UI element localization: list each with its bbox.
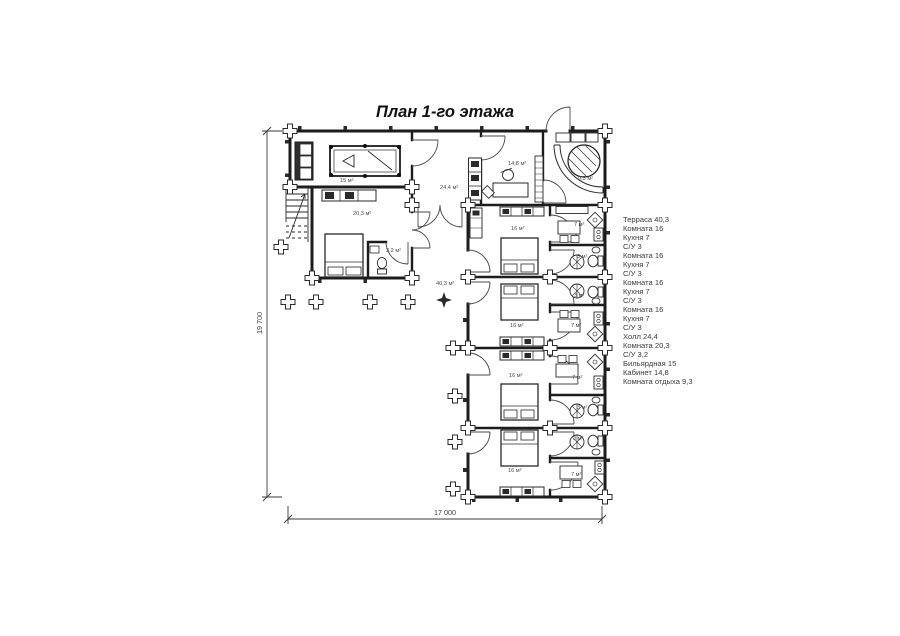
- lounge-top-bench: [556, 133, 598, 142]
- room-label-unit2-room: 16 м²: [510, 323, 524, 329]
- toilet-icon: [588, 435, 603, 447]
- room-label-unit1-bath: 3 м²: [577, 254, 588, 260]
- room-label-terrace: 40,3 м²: [436, 281, 454, 287]
- sink-icon: [587, 476, 603, 492]
- legend-item: Комната отдыха 9,3: [623, 377, 693, 386]
- legend-item: С/У 3: [623, 296, 642, 305]
- master-bedroom: [322, 190, 387, 277]
- toilet-icon: [377, 257, 386, 268]
- dresser: [500, 337, 544, 346]
- dimension-width-label: 17 000: [434, 508, 456, 517]
- floor-plan-page: 19 700 17 000 15 м² 20,3 м² 3,2 м² 24,4 …: [0, 0, 900, 636]
- bed: [501, 384, 538, 420]
- legend-item: Кабинет 14,8: [623, 368, 669, 377]
- bed: [501, 430, 538, 466]
- sink-icon: [592, 449, 600, 455]
- room-label-unit3-room: 16 м²: [509, 373, 523, 379]
- room-label-unit1-kitchen: 7 м²: [574, 222, 585, 228]
- legend-item: Бильярдная 15: [623, 359, 676, 368]
- room-label-hall: 24,4 м²: [440, 185, 458, 191]
- room-label-unit3-bath: 3 м²: [577, 405, 588, 411]
- unit-2: [500, 284, 603, 346]
- sofa: [295, 142, 313, 180]
- legend-item: Комната 16: [623, 305, 663, 314]
- room-label-master-bedroom: 20,3 м²: [353, 211, 371, 217]
- unit-3: [500, 351, 603, 420]
- legend-item: С/У 3: [623, 323, 642, 332]
- stair-direction-arrow: [289, 194, 305, 238]
- legend: Терраса 40,3 Комната 16 Кухня 7 С/У 3 Ко…: [623, 215, 693, 386]
- bed: [501, 284, 538, 320]
- legend-item: Терраса 40,3: [623, 215, 669, 224]
- post-cross-icon: [401, 295, 415, 309]
- door-office-lounge: [543, 180, 566, 203]
- dresser: [500, 207, 544, 216]
- exterior-stairs: [286, 188, 308, 242]
- room-label-unit2-bath: 3 м²: [574, 293, 585, 299]
- room-label-unit2-kitchen: 7 м²: [571, 323, 582, 329]
- room-label-billiard: 15 м²: [340, 178, 354, 184]
- hall-wardrobe: [469, 158, 482, 200]
- hall: [469, 158, 482, 200]
- chair: [560, 236, 568, 243]
- post-cross-icon: [448, 389, 462, 403]
- room-label-unit1-room: 16 м²: [511, 226, 525, 232]
- chair: [571, 311, 579, 318]
- door-unit3-entry: [468, 353, 490, 375]
- legend-item: Кухня 7: [623, 233, 650, 242]
- master-bed: [325, 234, 363, 277]
- stove-icon: [594, 376, 603, 389]
- printer: [482, 186, 495, 199]
- page-title: План 1-го этажа: [376, 103, 514, 121]
- door-entrance: [546, 107, 570, 131]
- room-label-unit4-room: 16 м²: [508, 468, 522, 474]
- room-label-unit3-kitchen: 7 м²: [572, 375, 583, 381]
- room-label-unit4-bath: 3 м²: [573, 436, 584, 442]
- billiard-room: [295, 142, 401, 180]
- legend-item: Кухня 7: [623, 260, 650, 269]
- room-label-unit4-kitchen: 7 м²: [571, 472, 582, 478]
- room-label-master-bath: 3,2 м²: [386, 248, 401, 254]
- legend-item: Комната 20,3: [623, 341, 670, 350]
- chair: [569, 356, 577, 363]
- post-cross-icon: [448, 435, 462, 449]
- floor-plan-svg: 19 700 17 000 15 м² 20,3 м² 3,2 м² 24,4 …: [0, 0, 900, 636]
- sink-icon: [592, 247, 600, 253]
- toilet-icon: [588, 404, 603, 416]
- legend-item: Кухня 7: [623, 287, 650, 296]
- stove-icon: [595, 461, 604, 474]
- room-label-lounge: 9,3 м²: [578, 176, 593, 182]
- legend-item: Комната 16: [623, 278, 663, 287]
- door-bedroom-terrace-2: [412, 230, 430, 248]
- door-bedroom-terrace-1: [412, 212, 430, 230]
- sink-icon: [587, 212, 603, 228]
- post-cross-icon: [309, 295, 323, 309]
- door-unit2-entry: [468, 282, 490, 304]
- chair: [562, 481, 570, 488]
- toilet-icon: [588, 286, 603, 298]
- stove-icon: [594, 312, 603, 325]
- column-star-icon: [436, 292, 452, 308]
- post-cross-icon: [446, 482, 460, 496]
- post-cross-icon: [274, 240, 288, 254]
- toilet-icon: [588, 255, 603, 267]
- legend-item: Холл 24,4: [623, 332, 658, 341]
- sink-icon: [370, 246, 379, 253]
- legend-item: Кухня 7: [623, 314, 650, 323]
- unit1-wardrobe: [470, 208, 482, 238]
- stove-icon: [594, 228, 603, 241]
- door-hall-office: [481, 136, 505, 160]
- unit-4: [500, 430, 604, 496]
- billiard-table: [329, 144, 401, 178]
- sink-icon: [587, 326, 603, 342]
- legend-item: С/У 3: [623, 242, 642, 251]
- chair: [571, 236, 579, 243]
- unit-1: [470, 207, 603, 275]
- chair: [573, 481, 581, 488]
- room-label-office: 14,8 м²: [508, 161, 526, 167]
- office-chair: [501, 168, 514, 180]
- sideboard: [322, 190, 376, 201]
- door-unit1-entry: [468, 250, 490, 272]
- lounge: [552, 132, 603, 193]
- post-cross-icon: [363, 295, 377, 309]
- legend-item: С/У 3,2: [623, 350, 648, 359]
- door-unit4-entry: [468, 432, 490, 454]
- bed: [501, 238, 538, 274]
- sink-icon: [587, 354, 603, 370]
- chair: [560, 311, 568, 318]
- legend-item: Комната 16: [623, 224, 663, 233]
- door-hall-terrace-right: [440, 205, 462, 227]
- dresser: [500, 351, 544, 360]
- sink-icon: [592, 298, 600, 304]
- master-bath-fixtures: [370, 246, 387, 274]
- door-billiard-hall: [412, 140, 438, 166]
- legend-item: Комната 16: [623, 251, 663, 260]
- dimension-height-label: 19 700: [255, 312, 264, 334]
- sink-icon: [592, 397, 600, 403]
- dresser: [500, 487, 544, 496]
- chair: [558, 356, 566, 363]
- post-cross-icon: [281, 295, 295, 309]
- dimension-left: [262, 127, 282, 501]
- kitchen-counter: [556, 207, 588, 214]
- door-hall-terrace-left: [418, 205, 440, 227]
- post-cross-icon: [446, 341, 460, 355]
- desk: [493, 183, 528, 197]
- legend-item: С/У 3: [623, 269, 642, 278]
- office-shelf-ladder: [535, 156, 543, 202]
